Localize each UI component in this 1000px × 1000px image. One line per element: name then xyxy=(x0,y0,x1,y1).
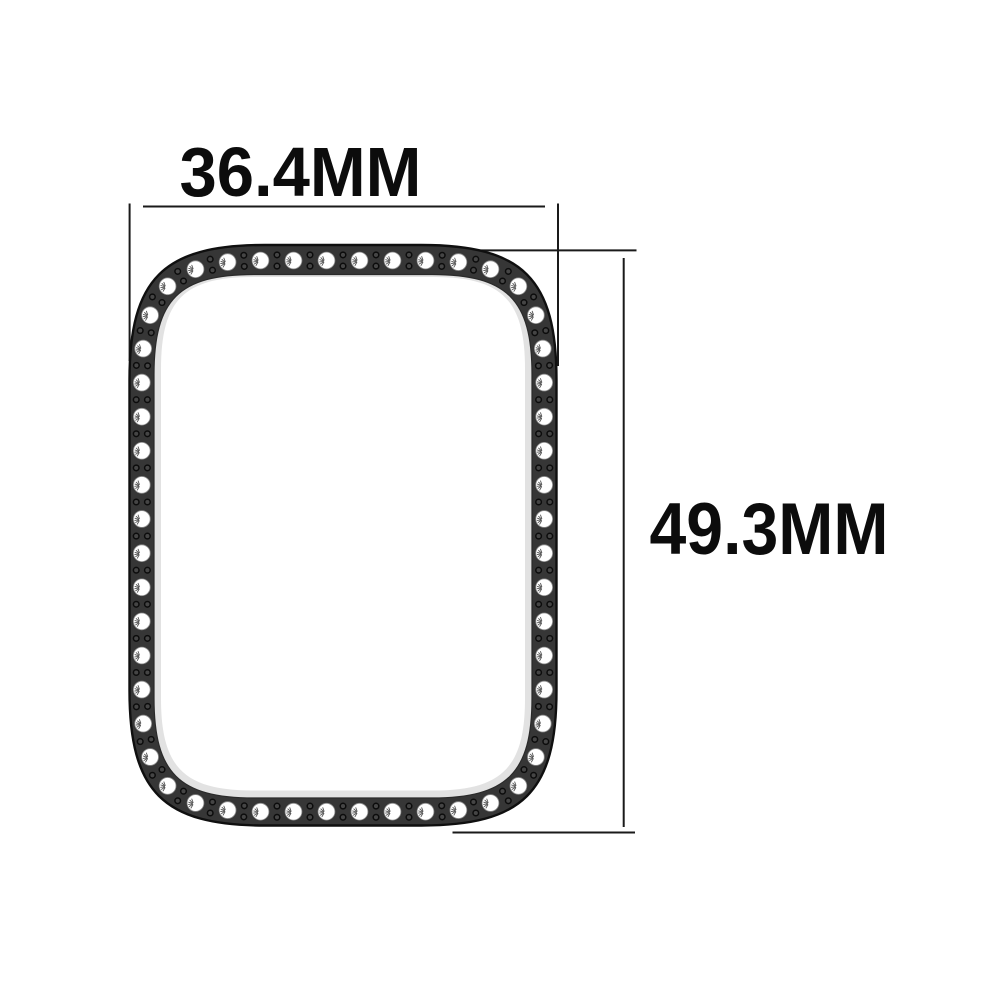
svg-text:49.3MM: 49.3MM xyxy=(650,487,889,570)
svg-text:36.4MM: 36.4MM xyxy=(180,133,422,211)
